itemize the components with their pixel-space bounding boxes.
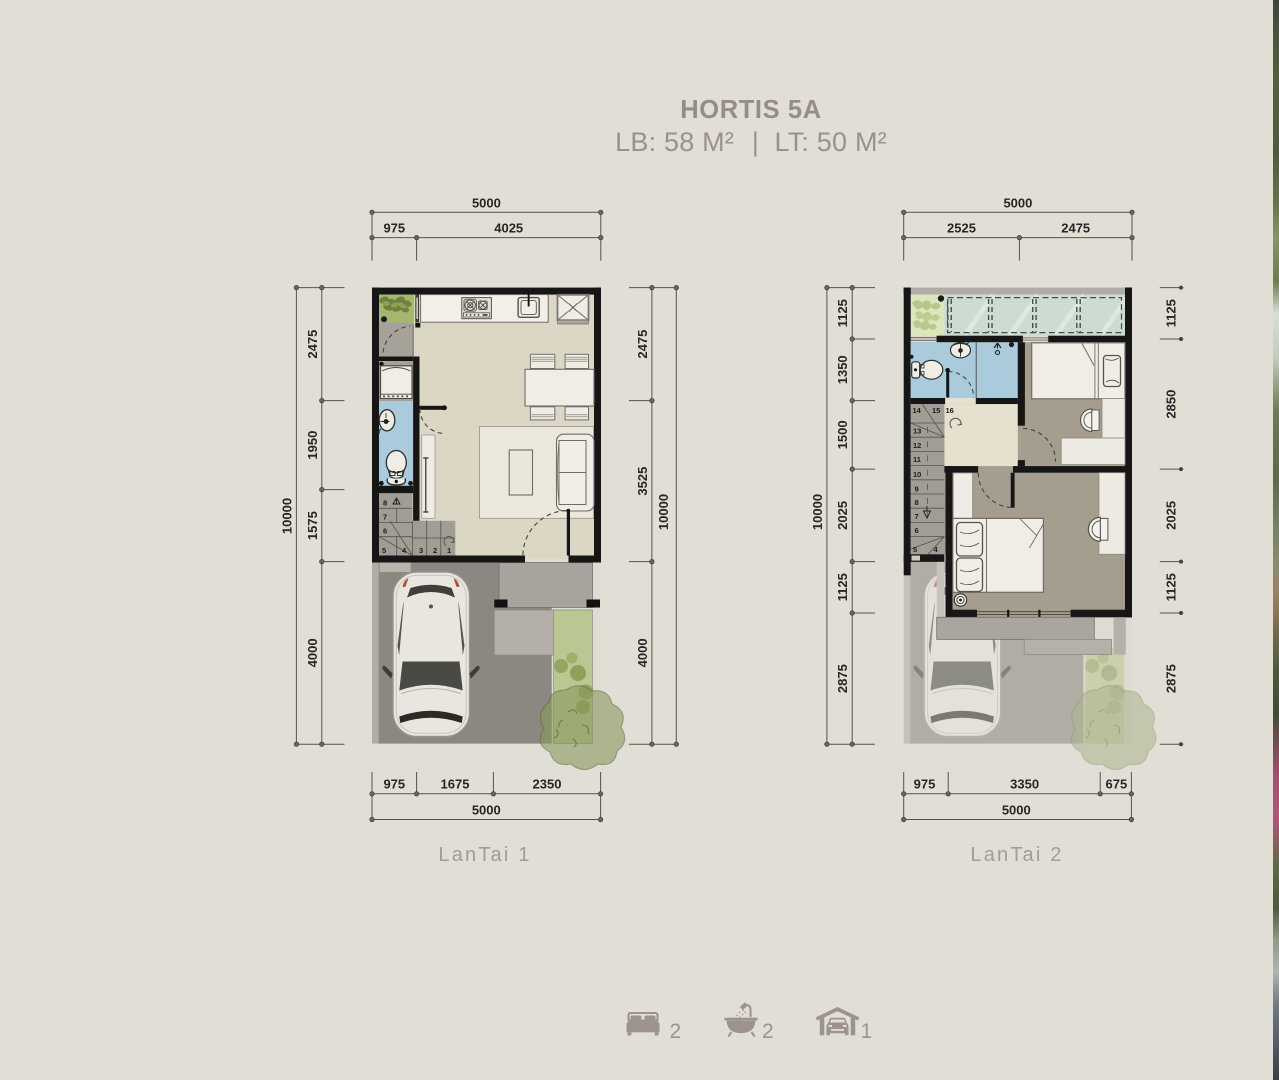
- svg-text:14: 14: [913, 406, 922, 415]
- svg-text:10000: 10000: [656, 494, 671, 530]
- svg-text:1350: 1350: [835, 355, 850, 384]
- svg-text:5000: 5000: [1003, 196, 1032, 211]
- svg-text:5: 5: [913, 545, 917, 554]
- svg-text:10: 10: [913, 470, 921, 479]
- svg-text:10000: 10000: [810, 494, 825, 530]
- svg-text:8: 8: [383, 499, 387, 508]
- svg-text:15: 15: [932, 406, 940, 415]
- svg-text:1675: 1675: [441, 777, 470, 792]
- svg-text:2875: 2875: [1164, 664, 1179, 693]
- svg-text:1125: 1125: [1164, 299, 1179, 327]
- svg-text:2025: 2025: [835, 501, 850, 530]
- svg-text:1: 1: [861, 1020, 873, 1043]
- svg-text:4000: 4000: [635, 638, 650, 667]
- svg-text:5: 5: [382, 546, 386, 555]
- svg-text:8: 8: [915, 498, 919, 507]
- svg-text:7: 7: [383, 513, 387, 522]
- svg-text:5000: 5000: [472, 802, 501, 817]
- svg-text:1950: 1950: [305, 431, 320, 460]
- svg-text:1125: 1125: [835, 299, 850, 327]
- svg-text:2: 2: [762, 1020, 774, 1043]
- svg-text:975: 975: [383, 777, 405, 792]
- svg-text:9: 9: [915, 485, 919, 494]
- svg-text:2475: 2475: [635, 330, 650, 359]
- svg-text:4025: 4025: [494, 221, 523, 236]
- svg-text:2850: 2850: [1164, 390, 1179, 419]
- svg-text:5000: 5000: [472, 196, 501, 211]
- svg-text:16: 16: [946, 406, 954, 415]
- svg-text:1: 1: [447, 546, 451, 555]
- svg-text:11: 11: [913, 455, 921, 464]
- svg-text:975: 975: [383, 221, 405, 236]
- svg-text:1125: 1125: [835, 573, 850, 601]
- svg-text:7: 7: [915, 512, 919, 521]
- svg-text:5000: 5000: [1002, 802, 1031, 817]
- svg-text:2475: 2475: [1061, 221, 1090, 236]
- svg-text:10000: 10000: [279, 498, 294, 534]
- svg-text:6: 6: [383, 527, 387, 536]
- svg-text:2475: 2475: [305, 330, 320, 359]
- svg-text:3525: 3525: [635, 467, 650, 496]
- svg-text:2350: 2350: [533, 777, 562, 792]
- svg-text:2025: 2025: [1164, 501, 1179, 530]
- svg-text:3350: 3350: [1010, 777, 1039, 792]
- svg-text:2: 2: [433, 546, 437, 555]
- svg-text:6: 6: [915, 526, 919, 535]
- svg-text:2875: 2875: [835, 664, 850, 693]
- svg-text:1500: 1500: [835, 420, 850, 449]
- svg-text:2525: 2525: [947, 221, 976, 236]
- svg-text:975: 975: [914, 777, 936, 792]
- svg-text:675: 675: [1106, 777, 1128, 792]
- svg-text:1125: 1125: [1164, 573, 1179, 601]
- svg-text:2: 2: [670, 1020, 682, 1043]
- svg-text:13: 13: [913, 427, 921, 436]
- svg-text:12: 12: [913, 441, 921, 450]
- svg-text:1575: 1575: [305, 511, 320, 540]
- svg-text:4000: 4000: [305, 638, 320, 667]
- svg-text:3: 3: [419, 546, 423, 555]
